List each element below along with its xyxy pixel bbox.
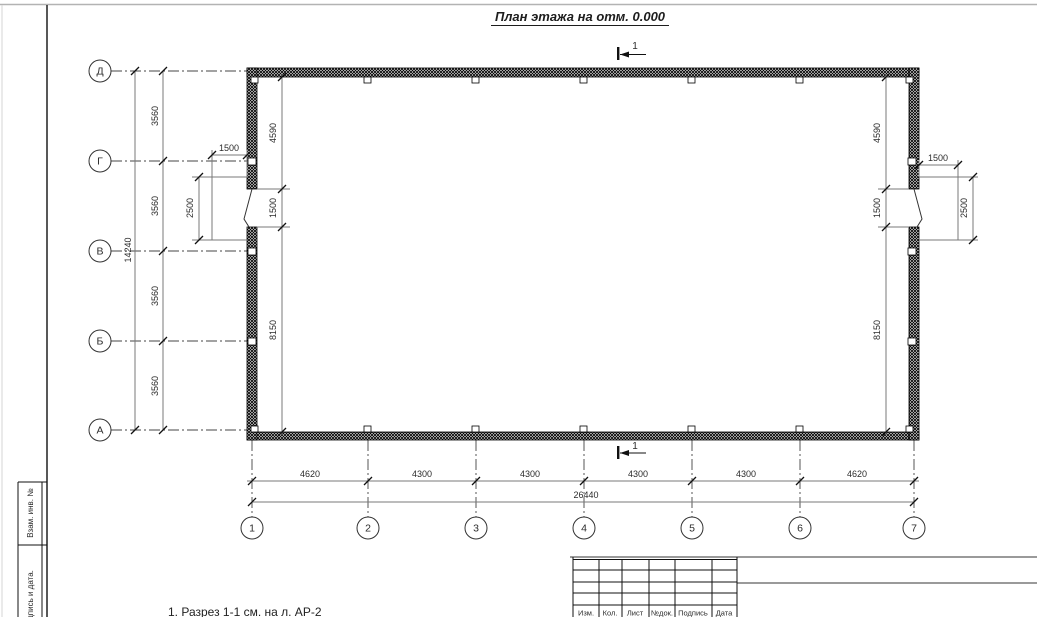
axis-label-G: Г <box>97 156 103 168</box>
dim-bottom-total: 26440 <box>573 490 598 500</box>
walls <box>247 68 919 440</box>
dim-bottom-chain-4: 4300 <box>736 469 756 479</box>
section-marks: 1 1 <box>617 41 646 459</box>
axis-lines <box>111 71 914 517</box>
wall-left-upper <box>247 68 257 189</box>
dim-left-chain-3: 3560 <box>150 376 160 396</box>
axis-label-2: 2 <box>365 523 371 535</box>
wall-right-lower <box>909 227 919 440</box>
axis-label-4: 4 <box>581 523 587 535</box>
drawing-title-text: План этажа на отм. 0.000 <box>491 9 669 26</box>
dim-bottom-chain-3: 4300 <box>628 469 648 479</box>
axis-label-7: 7 <box>911 523 917 535</box>
dim-inner-right-1: 1500 <box>872 198 882 218</box>
porch-right <box>919 177 958 240</box>
tb-label-data: Дата <box>716 609 733 617</box>
dim-porch-left-width: 2500 <box>185 198 195 218</box>
dim-inner-right-0: 4590 <box>872 123 882 143</box>
dim-inner-right-2: 8150 <box>872 320 882 340</box>
dim-porch-right-depth: 1500 <box>928 153 948 163</box>
wall-left-lower <box>247 227 257 440</box>
dim-left-chain-0: 3560 <box>150 106 160 126</box>
margin-boxes: Взам. инв. № Подпись и дата. <box>18 482 47 617</box>
wall-bottom <box>247 432 919 440</box>
tb-label-ndok: №док. <box>651 609 673 617</box>
dim-left-total: 14240 <box>123 237 133 262</box>
dim-left-chain-2: 3560 <box>150 286 160 306</box>
dim-inner-left-0: 4590 <box>268 123 278 143</box>
dim-bottom-chain-2: 4300 <box>520 469 540 479</box>
drawing-sheet: Взам. инв. № Подпись и дата. <box>0 0 1037 617</box>
wall-top <box>247 68 919 77</box>
section-mark-bottom-label: 1 <box>632 441 638 452</box>
axis-label-1: 1 <box>249 523 255 535</box>
sheet-frame <box>0 5 1037 617</box>
floor-plan-drawing: Взам. инв. № Подпись и дата. <box>0 0 1037 617</box>
dim-bottom-chain-1: 4300 <box>412 469 432 479</box>
axis-label-A: А <box>96 425 103 437</box>
door-right <box>914 189 922 227</box>
margin-box2-label: Подпись и дата. <box>26 570 35 617</box>
axis-bubble-labels-left: Д Г В Б А <box>96 66 103 437</box>
dim-bottom-chain-5: 4620 <box>847 469 867 479</box>
axis-label-5: 5 <box>689 523 695 535</box>
dim-porch-right-width: 2500 <box>959 198 969 218</box>
axis-bubble-labels-bottom: 1 2 3 4 5 6 7 <box>249 523 917 535</box>
drawing-title: План этажа на отм. 0.000 <box>410 9 750 24</box>
dim-inner-left-1: 1500 <box>268 198 278 218</box>
dim-left-chain-1: 3560 <box>150 196 160 216</box>
axis-label-B: Б <box>97 336 104 348</box>
pilasters <box>248 77 916 432</box>
axis-label-6: 6 <box>797 523 803 535</box>
tb-label-podpis: Подпись <box>678 609 708 617</box>
porch-left <box>212 177 247 240</box>
margin-box1-label: Взам. инв. № <box>26 488 35 538</box>
dim-inner-left-2: 8150 <box>268 320 278 340</box>
wall-right-upper <box>909 68 919 189</box>
axis-label-3: 3 <box>473 523 479 535</box>
axis-label-V: В <box>96 246 103 258</box>
tb-label-kol: Кол. <box>603 609 618 617</box>
door-left <box>244 189 252 227</box>
dim-bottom-chain-0: 4620 <box>300 469 320 479</box>
section-mark-top-label: 1 <box>632 41 638 52</box>
door-leaves <box>244 189 922 227</box>
axis-label-D: Д <box>96 66 103 78</box>
tb-label-list: Лист <box>627 609 644 617</box>
tb-label-izm: Изм. <box>578 609 594 617</box>
title-block: Изм. Кол. Лист №док. Подпись Дата <box>570 557 1037 617</box>
dim-porch-left-depth: 1500 <box>219 143 239 153</box>
note-text: 1. Разрез 1-1 см. на л. АР-2 <box>168 605 322 617</box>
